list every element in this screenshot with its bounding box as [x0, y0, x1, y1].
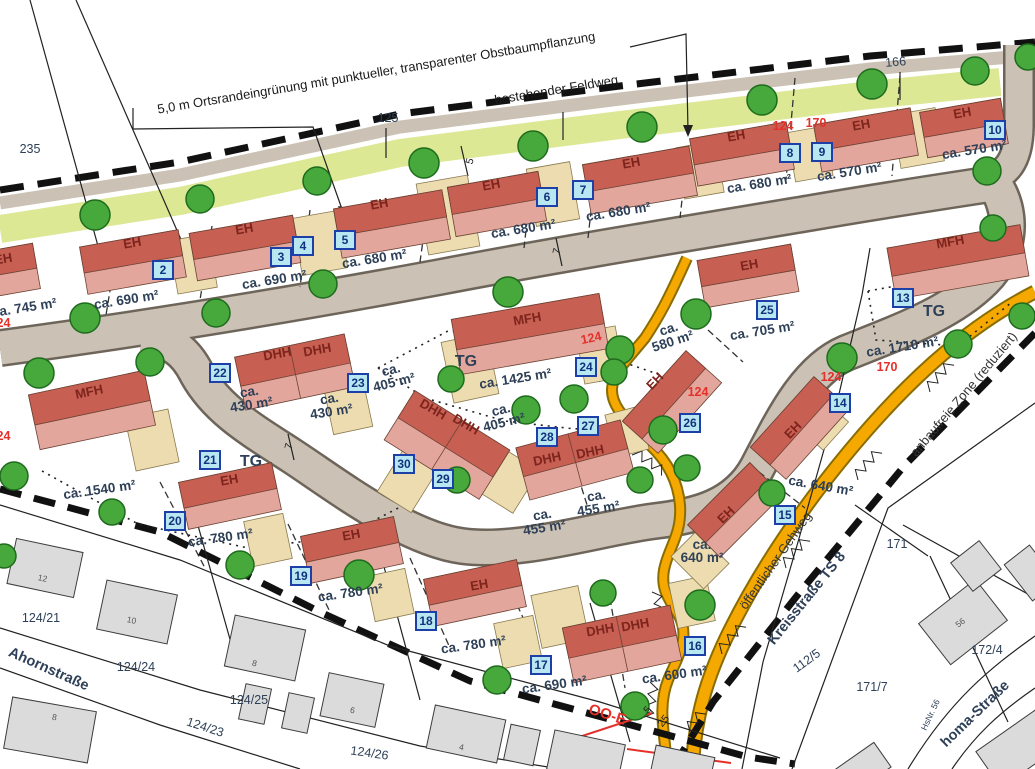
map-label: 124/25 [230, 693, 268, 707]
map-label: EH [739, 256, 759, 274]
plot-marker-20: 20 [165, 512, 185, 530]
map-label: 172/4 [971, 643, 1002, 657]
map-label: 124 [773, 119, 794, 133]
plot-marker-number: 30 [397, 457, 411, 471]
tree-icon [759, 480, 785, 506]
plot-marker-number: 24 [579, 360, 593, 374]
plot-marker-number: 27 [581, 419, 595, 433]
tree-icon [226, 551, 254, 579]
plot-marker-number: 8 [787, 146, 794, 160]
tree-icon [309, 270, 337, 298]
plot-marker-number: 18 [419, 614, 433, 628]
plot-marker-number: 13 [896, 291, 910, 305]
map-label: TG [455, 353, 477, 370]
plot-marker-21: 21 [200, 451, 220, 469]
plot-marker-number: 23 [351, 376, 365, 390]
map-label: 124 [821, 370, 842, 384]
tree-icon [973, 157, 1001, 185]
map-label: 124/24 [117, 660, 155, 674]
plot-marker-number: 7 [580, 183, 587, 197]
plot-marker-13: 13 [893, 289, 913, 307]
plot-marker-number: 25 [760, 303, 774, 317]
plot-marker-8: 8 [780, 144, 800, 162]
tree-icon [136, 348, 164, 376]
plot-marker-10: 10 [985, 121, 1005, 139]
map-label: 124 [688, 385, 709, 399]
tree-icon [857, 69, 887, 99]
tree-icon [24, 358, 54, 388]
tree-icon [590, 580, 616, 606]
tree-icon [627, 467, 653, 493]
plot-marker-2: 2 [153, 261, 173, 279]
map-label: EH [481, 176, 501, 194]
map-label: TG [240, 453, 262, 470]
tree-icon [493, 277, 523, 307]
map-label: 124 [0, 429, 10, 443]
map-label: 166 [885, 54, 907, 70]
map-label: EH [851, 116, 871, 134]
plot-marker-number: 15 [778, 508, 792, 522]
plot-marker-number: 5 [342, 233, 349, 247]
tree-icon [685, 590, 715, 620]
tree-icon [518, 131, 548, 161]
map-label: EH [341, 526, 361, 544]
plot-marker-7: 7 [573, 181, 593, 199]
tree-icon [674, 455, 700, 481]
tree-icon [202, 299, 230, 327]
plot-marker-22: 22 [210, 364, 230, 382]
plot-marker-number: 20 [168, 514, 182, 528]
plot-marker-17: 17 [531, 656, 551, 674]
map-label: 170 [806, 116, 827, 130]
plot-marker-19: 19 [291, 567, 311, 585]
map-label: EH [219, 471, 239, 489]
plot-marker-number: 17 [534, 658, 548, 672]
map-label: 124/21 [22, 611, 60, 625]
map-label: 171/7 [856, 680, 887, 694]
site-plan-map: 2345678910131415161718192021222324252627… [0, 0, 1035, 769]
tree-icon [1015, 44, 1035, 70]
plot-marker-29: 29 [433, 470, 453, 488]
tree-icon [944, 330, 972, 358]
tree-icon [649, 416, 677, 444]
map-label: 235 [20, 142, 41, 156]
plot-marker-number: 26 [683, 416, 697, 430]
plot-marker-30: 30 [394, 455, 414, 473]
map-label: EH [621, 154, 641, 172]
tree-icon [560, 385, 588, 413]
plot-marker-6: 6 [537, 188, 557, 206]
plot-marker-26: 26 [680, 414, 700, 432]
map-label: EH [952, 104, 972, 122]
tree-icon [681, 299, 711, 329]
plot-marker-25: 25 [757, 301, 777, 319]
plot-marker-16: 16 [685, 637, 705, 655]
site-plan-svg: 2345678910131415161718192021222324252627… [0, 0, 1035, 769]
map-label: EH [234, 220, 254, 238]
plot-marker-18: 18 [416, 612, 436, 630]
plot-marker-number: 2 [160, 263, 167, 277]
map-label: 171 [887, 537, 908, 551]
plot-marker-number: 3 [278, 250, 285, 264]
plot-marker-number: 22 [213, 366, 227, 380]
map-label: 124 [0, 316, 10, 330]
plot-marker-number: 16 [688, 639, 702, 653]
plot-marker-number: 9 [819, 145, 826, 159]
tree-icon [409, 148, 439, 178]
plot-marker-number: 19 [294, 569, 308, 583]
tree-icon [827, 343, 857, 373]
map-label: EH [369, 195, 389, 213]
tree-icon [747, 85, 777, 115]
tree-icon [601, 359, 627, 385]
map-label: EH [122, 234, 142, 252]
plot-marker-9: 9 [812, 143, 832, 161]
plot-marker-14: 14 [830, 394, 850, 412]
tree-icon [1009, 303, 1035, 329]
tree-icon [627, 112, 657, 142]
tree-icon [980, 215, 1006, 241]
plot-marker-27: 27 [578, 417, 598, 435]
plot-marker-15: 15 [775, 506, 795, 524]
plot-marker-number: 6 [544, 190, 551, 204]
plot-marker-number: 21 [203, 453, 217, 467]
map-label: 125 [378, 111, 399, 125]
plot-marker-4: 4 [293, 237, 313, 255]
map-label: 170 [877, 360, 898, 374]
plot-marker-number: 29 [436, 472, 450, 486]
tree-icon [303, 167, 331, 195]
map-label: EH [469, 576, 489, 594]
plot-marker-number: 14 [833, 396, 847, 410]
tree-icon [483, 666, 511, 694]
tree-icon [186, 185, 214, 213]
plot-marker-24: 24 [576, 358, 596, 376]
tree-icon [961, 57, 989, 85]
plot-marker-number: 10 [988, 123, 1002, 137]
plot-marker-23: 23 [348, 374, 368, 392]
map-label: EH [726, 127, 746, 145]
tree-icon [80, 200, 110, 230]
plot-marker-28: 28 [537, 428, 557, 446]
plot-marker-5: 5 [335, 231, 355, 249]
plot-marker-number: 4 [300, 239, 307, 253]
plot-marker-number: 28 [540, 430, 554, 444]
tree-icon [0, 462, 28, 490]
map-label: TG [923, 303, 945, 320]
tree-icon [99, 499, 125, 525]
plot-marker-3: 3 [271, 248, 291, 266]
